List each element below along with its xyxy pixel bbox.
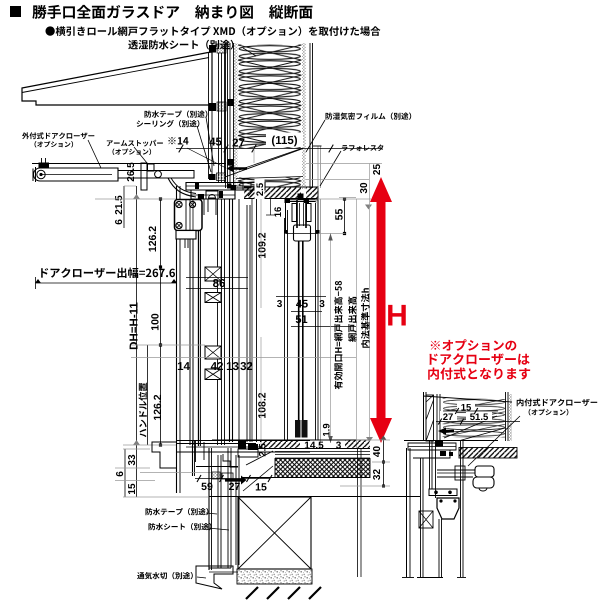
svg-text:32: 32 [372, 469, 383, 481]
svg-text:27: 27 [232, 138, 245, 150]
svg-text:15: 15 [255, 482, 267, 494]
svg-text:3: 3 [277, 299, 283, 310]
svg-text:109.2: 109.2 [257, 232, 269, 258]
svg-text:2.5: 2.5 [257, 443, 268, 457]
svg-text:6: 6 [115, 471, 126, 477]
svg-text:25: 25 [372, 164, 383, 176]
svg-text:21.5: 21.5 [114, 195, 125, 215]
svg-text:126.2: 126.2 [147, 226, 159, 252]
svg-text:1.9: 1.9 [321, 423, 332, 436]
svg-text:32: 32 [240, 361, 253, 373]
svg-text:3: 3 [319, 299, 325, 310]
svg-text:(115): (115) [271, 135, 297, 147]
svg-text:2.5: 2.5 [255, 182, 266, 196]
svg-text:45: 45 [296, 298, 308, 310]
svg-text:126.2: 126.2 [152, 394, 164, 420]
svg-text:DH=H-11: DH=H-11 [129, 302, 141, 350]
svg-text:33: 33 [127, 454, 138, 466]
svg-text:14: 14 [177, 361, 190, 373]
svg-text:51: 51 [295, 314, 307, 326]
svg-text:6: 6 [114, 219, 125, 225]
svg-text:40: 40 [372, 446, 383, 458]
svg-text:16: 16 [273, 207, 284, 218]
svg-text:100: 100 [150, 313, 162, 331]
svg-text:15: 15 [127, 483, 138, 495]
svg-text:42: 42 [211, 361, 224, 373]
svg-text:108.2: 108.2 [257, 392, 269, 418]
svg-text:55: 55 [334, 209, 346, 221]
svg-text:26.5: 26.5 [126, 162, 137, 182]
svg-text:14.5: 14.5 [304, 441, 324, 452]
svg-text:86: 86 [213, 278, 226, 290]
svg-text:3: 3 [336, 441, 342, 452]
svg-text:30: 30 [359, 182, 370, 194]
svg-text:13: 13 [226, 361, 239, 373]
svg-text:H: H [386, 300, 408, 333]
svg-text:45: 45 [209, 137, 222, 149]
